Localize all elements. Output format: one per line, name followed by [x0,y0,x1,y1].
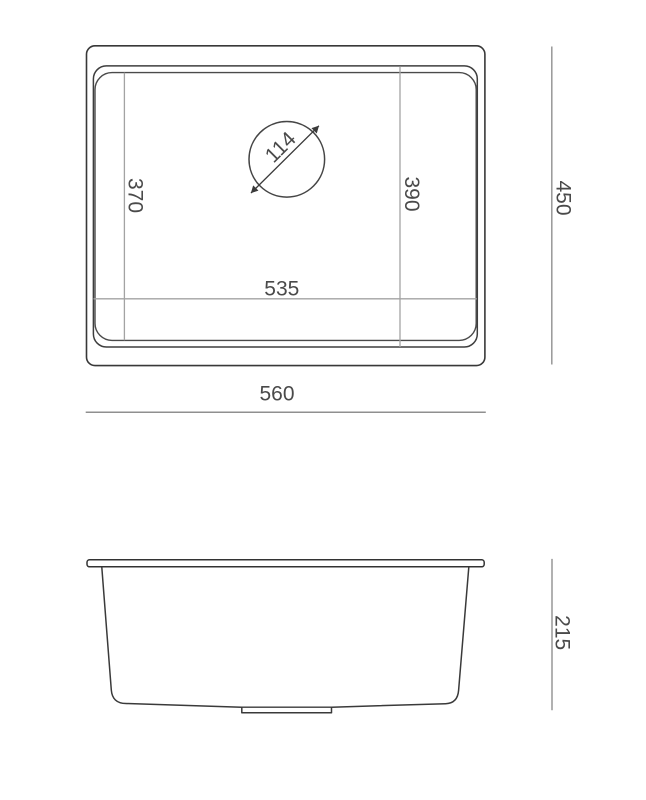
svg-text:390: 390 [400,176,423,211]
svg-text:560: 560 [259,382,294,405]
svg-text:370: 370 [123,178,146,213]
svg-text:450: 450 [551,180,574,215]
svg-text:215: 215 [551,615,574,650]
svg-text:535: 535 [264,278,299,301]
svg-text:114: 114 [261,127,301,167]
